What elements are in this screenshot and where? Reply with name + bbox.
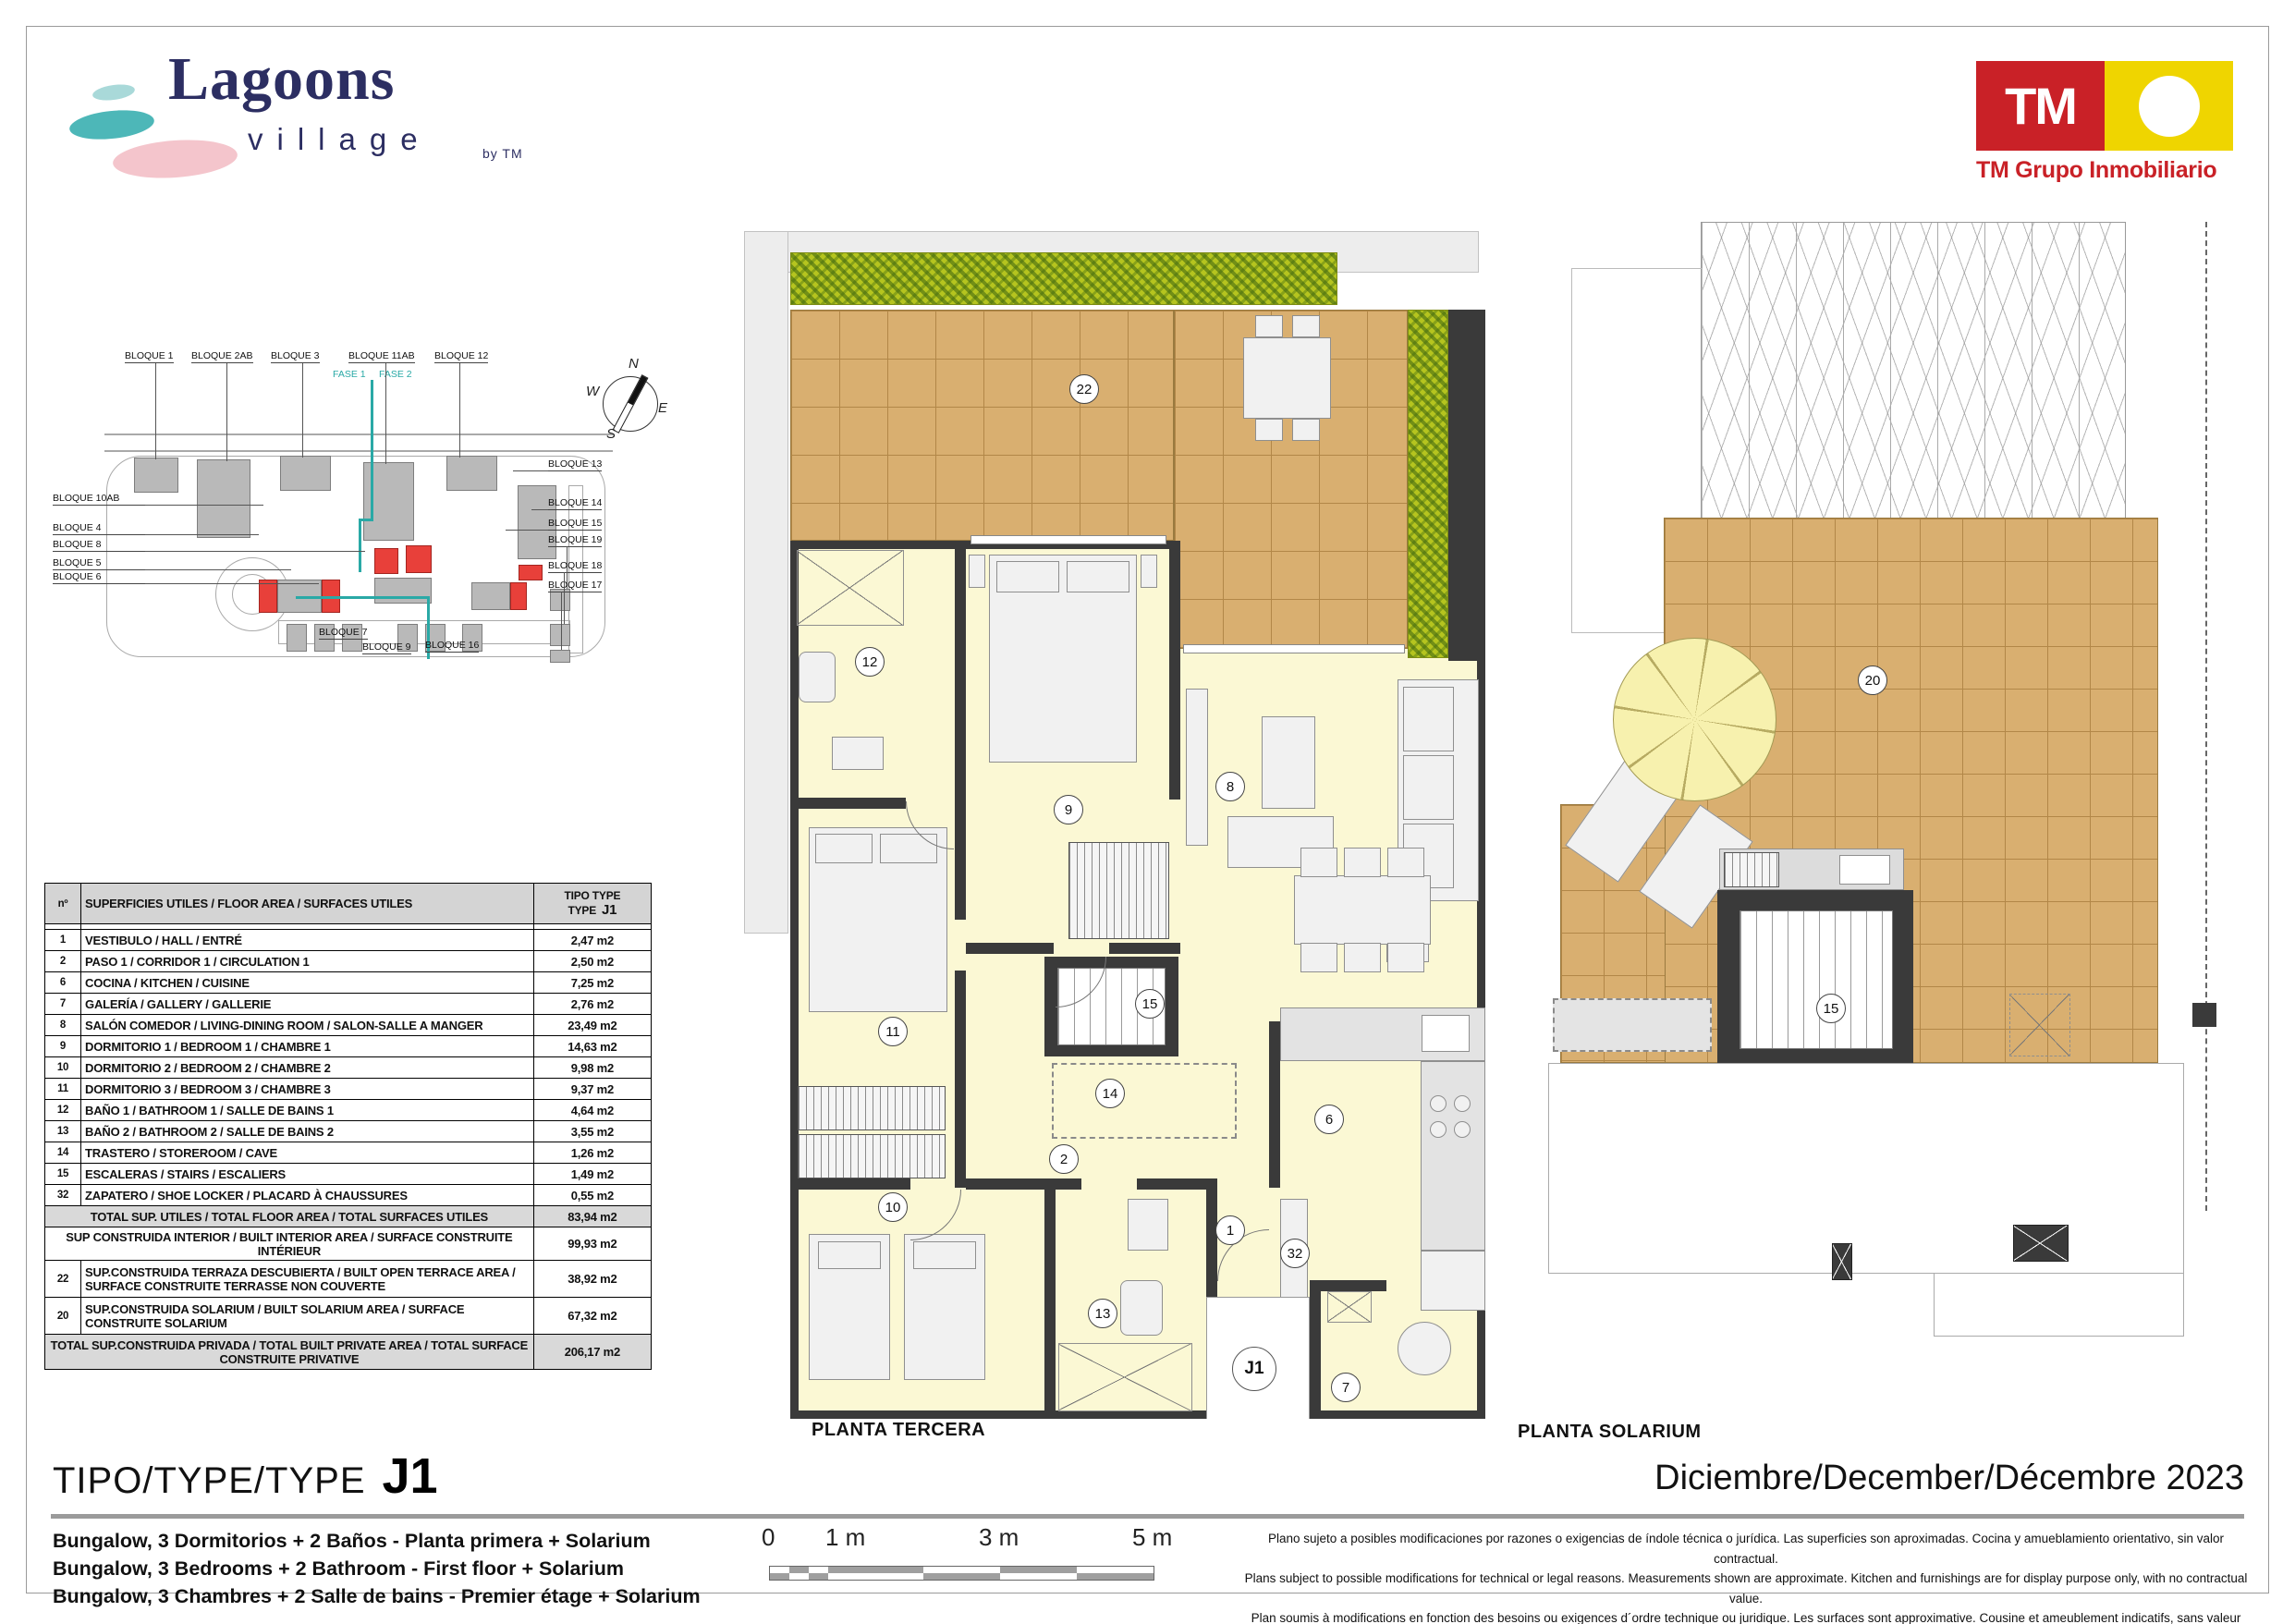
- glass-door: [970, 535, 1166, 544]
- terrace-value: 38,92 m2: [533, 1261, 651, 1298]
- scale-cell: [770, 1573, 789, 1580]
- footer-divider: [51, 1514, 2244, 1519]
- scale-tick-1m: 1 m: [825, 1523, 865, 1552]
- site-label-bloque-15: BLOQUE 15: [548, 518, 602, 531]
- wall: [790, 798, 906, 809]
- table-row: 6COCINA / KITCHEN / CUISINE7,25 m2: [45, 972, 652, 994]
- room-number-storeroom: 14: [1095, 1079, 1125, 1108]
- fridge: [1421, 1251, 1485, 1311]
- legal-disclaimer: Plano sujeto a posibles modificaciones p…: [1239, 1529, 2253, 1624]
- dining-chair: [1387, 943, 1424, 972]
- wall: [955, 541, 966, 809]
- compass: N W E S: [592, 363, 671, 443]
- floorplan-planta-tercera: 22 12 9 8 11 15 14 2 6 10 13 1 32 7 J1: [739, 217, 1493, 1447]
- row-val: 1,26 m2: [533, 1142, 651, 1164]
- sofa-cushion: [1403, 755, 1454, 820]
- wall: [1310, 1280, 1386, 1291]
- building-bloque-17: [550, 650, 570, 663]
- parasol-umbrella: [1613, 638, 1776, 801]
- table-row: 11DORMITORIO 3 / BEDROOM 3 / CHAMBRE 39,…: [45, 1079, 652, 1100]
- site-label-bloque-11ab: BLOQUE 11AB: [348, 350, 415, 363]
- wall: [966, 943, 1054, 954]
- boundary-dashed-line: [2205, 222, 2207, 1211]
- wall: [955, 809, 966, 920]
- tm-logo-red-square: TM: [1976, 61, 2105, 151]
- pillow: [818, 1241, 881, 1269]
- room-number-gallery: 7: [1331, 1373, 1361, 1402]
- row-desc: ESCALERAS / STAIRS / ESCALIERS: [81, 1164, 534, 1185]
- dining-chair: [1344, 848, 1381, 877]
- row-val: 23,49 m2: [533, 1015, 651, 1036]
- site-label-bloque-10ab: BLOQUE 10AB: [53, 493, 145, 506]
- building-bloque-15: [471, 582, 510, 610]
- leader-line: [561, 592, 562, 650]
- room-number-bedroom1: 9: [1054, 795, 1083, 824]
- sheet-date: Diciembre/December/Décembre 2023: [1386, 1459, 2244, 1498]
- row-desc: BAÑO 2 / BATHROOM 2 / SALLE DE BAINS 2: [81, 1121, 534, 1142]
- site-label-bloque-6: BLOQUE 6: [53, 571, 145, 584]
- sofa-cushion: [1403, 687, 1454, 751]
- col-num: nº: [45, 884, 81, 924]
- scale-cell: [789, 1567, 809, 1573]
- washing-machine: [1398, 1322, 1451, 1375]
- room-number-terrace: 22: [1069, 374, 1099, 404]
- toilet: [799, 652, 836, 702]
- disclaimer-fr: Plan soumis à modifications en fonction …: [1239, 1608, 2253, 1624]
- wall: [1169, 541, 1180, 800]
- disclaimer-es: Plano sujeto a posibles modificaciones p…: [1239, 1529, 2253, 1569]
- tm-logo-text: TM: [2005, 76, 2076, 136]
- scale-cell: [1077, 1573, 1154, 1580]
- row-val: 0,55 m2: [533, 1185, 651, 1206]
- description-en: Bungalow, 3 Bedrooms + 2 Bathroom - Firs…: [53, 1555, 701, 1582]
- compass-s: S: [606, 426, 616, 442]
- table-row: 7GALERÍA / GALLERY / GALLERIE2,76 m2: [45, 994, 652, 1015]
- compass-w: W: [586, 384, 599, 399]
- leader-line: [145, 505, 263, 506]
- brand-byline: by TM: [482, 146, 523, 161]
- scale-tick-0: 0: [762, 1523, 775, 1552]
- row-num: 15: [45, 1164, 81, 1185]
- leader-line: [564, 572, 565, 624]
- scale-cell: [1000, 1567, 1077, 1573]
- row-num: 1: [45, 930, 81, 951]
- site-label-bloque-1: BLOQUE 1: [125, 350, 174, 363]
- cooktop-burner: [1454, 1121, 1471, 1138]
- logo-ellipse-teal: [68, 106, 156, 142]
- scale-cell: [828, 1573, 847, 1580]
- scale-bar-row: [770, 1567, 1154, 1573]
- sink: [832, 737, 884, 770]
- total-private-value: 206,17 m2: [533, 1335, 651, 1370]
- sink: [1128, 1199, 1168, 1251]
- scale-bar: [769, 1566, 1154, 1581]
- table-row: 32ZAPATERO / SHOE LOCKER / PLACARD À CHA…: [45, 1185, 652, 1206]
- leader-line: [567, 546, 568, 589]
- site-label-bloque-7: BLOQUE 7: [319, 627, 368, 640]
- disclaimer-en: Plans subject to possible modifications …: [1239, 1569, 2253, 1608]
- leader-line: [385, 363, 386, 464]
- row-desc: TRASTERO / STOREROOM / CAVE: [81, 1142, 534, 1164]
- shower-tray: [797, 550, 904, 626]
- table-terrace-row: 22 SUP.CONSTRUIDA TERRAZA DESCUBIERTA / …: [45, 1261, 652, 1298]
- site-label-bloque-17: BLOQUE 17: [548, 580, 602, 592]
- hedge-top: [790, 252, 1337, 305]
- table-total-utiles-row: TOTAL SUP. UTILES / TOTAL FLOOR AREA / T…: [45, 1206, 652, 1227]
- site-label-bloque-19: BLOQUE 19: [548, 534, 602, 547]
- wardrobe: [1068, 842, 1169, 939]
- grill-grate: [1724, 852, 1779, 887]
- scale-cell: [789, 1573, 809, 1580]
- tm-logo-yellow-square: [2105, 61, 2233, 151]
- outdoor-chair: [1292, 419, 1320, 441]
- tm-logo-circle-icon: [2139, 76, 2200, 137]
- wall: [790, 1178, 910, 1190]
- leader-line: [145, 551, 365, 552]
- kitchen-sink: [1422, 1015, 1470, 1052]
- pillow: [996, 561, 1059, 592]
- leader-line: [145, 569, 291, 570]
- terrace-label: SUP.CONSTRUIDA TERRAZA DESCUBIERTA / BUI…: [81, 1261, 534, 1298]
- table-row: 13BAÑO 2 / BATHROOM 2 / SALLE DE BAINS 2…: [45, 1121, 652, 1142]
- dining-chair: [1387, 848, 1424, 877]
- row-desc: PASO 1 / CORRIDOR 1 / CIRCULATION 1: [81, 951, 534, 972]
- row-desc: DORMITORIO 1 / BEDROOM 1 / CHAMBRE 1: [81, 1036, 534, 1057]
- wall: [955, 971, 966, 1188]
- type-code: J1: [383, 1447, 438, 1505]
- floorplan-planta-solarium: 20 15: [1534, 213, 2218, 1442]
- row-desc: VESTIBULO / HALL / ENTRÉ: [81, 930, 534, 951]
- table-row: 9DORMITORIO 1 / BEDROOM 1 / CHAMBRE 114,…: [45, 1036, 652, 1057]
- site-label-bloque-9: BLOQUE 9: [362, 641, 411, 654]
- room-number-bath2: 13: [1088, 1299, 1117, 1328]
- logo-ellipse-lightteal: [92, 82, 136, 103]
- lower-roof-outline: [1934, 1274, 2184, 1337]
- building-bloque-12: [446, 456, 497, 491]
- table-row: 15ESCALERAS / STAIRS / ESCALIERS1,49 m2: [45, 1164, 652, 1185]
- pillow: [913, 1241, 976, 1269]
- type-label: TIPO/TYPE/TYPE: [53, 1460, 366, 1502]
- col-type-code: J1: [602, 902, 616, 918]
- scale-cell: [923, 1573, 1000, 1580]
- building-highlighted: [406, 545, 432, 573]
- solarium-label: SUP.CONSTRUIDA SOLARIUM / BUILT SOLARIUM…: [81, 1298, 534, 1335]
- fase-boundary-line: [359, 519, 361, 572]
- row-desc: COCINA / KITCHEN / CUISINE: [81, 972, 534, 994]
- description-fr: Bungalow, 3 Chambres + 2 Salle de bains …: [53, 1582, 701, 1610]
- room-number-shoelocker: 32: [1280, 1239, 1310, 1268]
- terrace-tiles: [790, 310, 1174, 541]
- walkway: [744, 231, 788, 934]
- building-bloque-11-lower: [374, 578, 432, 604]
- site-label-bloque-5: BLOQUE 5: [53, 557, 145, 570]
- row-desc: GALERÍA / GALLERY / GALLERIE: [81, 994, 534, 1015]
- row-num: 2: [45, 951, 81, 972]
- room-number-hall: 1: [1215, 1215, 1245, 1245]
- road-line: [104, 450, 613, 452]
- room-number-bedroom2: 10: [878, 1192, 908, 1222]
- storeroom-under-stairs: [1052, 1063, 1237, 1139]
- wall: [1206, 1188, 1217, 1297]
- vent-box: [1832, 1243, 1852, 1280]
- laundry-box: [1327, 1291, 1372, 1323]
- solarium-value: 67,32 m2: [533, 1298, 651, 1335]
- wall: [1448, 310, 1485, 661]
- label-planta-tercera: PLANTA TERCERA: [812, 1420, 985, 1441]
- sheet-title: TIPO/TYPE/TYPE J1: [53, 1447, 438, 1505]
- leader-line: [531, 509, 548, 510]
- glass-door: [1183, 644, 1405, 653]
- lower-roof-outline: [1548, 1063, 2184, 1274]
- table-solarium-row: 20 SUP.CONSTRUIDA SOLARIUM / BUILT SOLAR…: [45, 1298, 652, 1335]
- leader-line: [302, 363, 303, 458]
- building-bloque-2ab: [197, 459, 250, 538]
- row-val: 2,47 m2: [533, 930, 651, 951]
- lagoons-logo: Lagoons village by TM: [65, 37, 545, 185]
- row-num: 9: [45, 1036, 81, 1057]
- leader-line: [459, 363, 460, 458]
- row-num: 7: [45, 994, 81, 1015]
- brand-subtitle: village: [248, 122, 432, 157]
- wall: [1269, 1021, 1280, 1188]
- site-label-bloque-4: BLOQUE 4: [53, 522, 145, 535]
- total-utiles-label: TOTAL SUP. UTILES / TOTAL FLOOR AREA / T…: [45, 1206, 534, 1227]
- pillow: [1067, 561, 1129, 592]
- scale-bar-row: [770, 1573, 1154, 1580]
- row-num: 12: [45, 1100, 81, 1121]
- description-es: Bungalow, 3 Dormitorios + 2 Baños - Plan…: [53, 1527, 701, 1555]
- room-number-bedroom3: 11: [878, 1017, 908, 1046]
- unit-descriptions: Bungalow, 3 Dormitorios + 2 Baños - Plan…: [53, 1527, 701, 1610]
- scale-cell: [828, 1567, 847, 1573]
- site-label-bloque-13: BLOQUE 13: [548, 458, 602, 471]
- row-val: 9,37 m2: [533, 1079, 651, 1100]
- wardrobe: [798, 1086, 946, 1130]
- room-number-stairs: 15: [1135, 989, 1165, 1019]
- col-type: TIPO TYPE TYPEJ1: [533, 884, 651, 924]
- row-num: 11: [45, 1079, 81, 1100]
- site-label-bloque-3: BLOQUE 3: [271, 350, 320, 363]
- wall: [1137, 1178, 1217, 1190]
- room-number-living: 8: [1215, 772, 1245, 801]
- row-desc: ZAPATERO / SHOE LOCKER / PLACARD À CHAUS…: [81, 1185, 534, 1206]
- wall: [1310, 1291, 1321, 1419]
- scale-cell: [847, 1567, 923, 1573]
- site-label-bloque-2ab: BLOQUE 2AB: [191, 350, 253, 363]
- site-label-bloque-16: BLOQUE 16: [425, 640, 479, 653]
- row-desc: DORMITORIO 3 / BEDROOM 3 / CHAMBRE 3: [81, 1079, 534, 1100]
- building-highlighted: [510, 582, 527, 610]
- wardrobe: [798, 1134, 946, 1178]
- row-num: 32: [45, 1185, 81, 1206]
- wall: [966, 1178, 1081, 1190]
- table-built-interior-row: SUP CONSTRUIDA INTERIOR / BUILT INTERIOR…: [45, 1227, 652, 1261]
- row-num: 6: [45, 972, 81, 994]
- row-val: 1,49 m2: [533, 1164, 651, 1185]
- tm-grupo-logo: TM TM Grupo Inmobiliario: [1976, 61, 2263, 190]
- scale-cell: [1077, 1567, 1154, 1573]
- tv-cabinet: [1186, 689, 1208, 846]
- scale-cell: [847, 1573, 923, 1580]
- row-desc: DORMITORIO 2 / BEDROOM 2 / CHAMBRE 2: [81, 1057, 534, 1079]
- leader-line: [226, 363, 227, 461]
- room-number-kitchen: 6: [1314, 1105, 1344, 1134]
- site-label-bloque-14: BLOQUE 14: [548, 497, 602, 510]
- scale-cell: [770, 1567, 789, 1573]
- col-desc: SUPERFICIES UTILES / FLOOR AREA / SURFAC…: [81, 884, 534, 924]
- hedge-right: [1408, 310, 1448, 658]
- compass-e: E: [658, 400, 667, 416]
- plan-sheet: Lagoons village by TM TM TM Grupo Inmobi…: [0, 0, 2295, 1624]
- dining-table: [1294, 875, 1431, 945]
- outdoor-sink: [1839, 855, 1890, 885]
- nightstand: [969, 555, 985, 588]
- site-plan: FASE 1 FASE 2 BLOQUE 1 BLOQUE 2AB BLOQUE…: [51, 347, 689, 665]
- building-bloque-1: [134, 458, 178, 493]
- outdoor-table: [1243, 337, 1331, 419]
- scale-cell: [809, 1573, 828, 1580]
- cooktop-burner: [1430, 1095, 1447, 1112]
- table-row: 10DORMITORIO 2 / BEDROOM 2 / CHAMBRE 29,…: [45, 1057, 652, 1079]
- row-desc: BAÑO 1 / BATHROOM 1 / SALLE DE BAINS 1: [81, 1100, 534, 1121]
- label-planta-solarium: PLANTA SOLARIUM: [1518, 1422, 1702, 1443]
- fase-2-label: FASE 2: [379, 369, 412, 380]
- table-row: 1VESTIBULO / HALL / ENTRÉ2,47 m2: [45, 930, 652, 951]
- total-private-label: TOTAL SUP.CONSTRUIDA PRIVADA / TOTAL BUI…: [45, 1335, 534, 1370]
- brand-title: Lagoons: [168, 44, 395, 115]
- scale-cell: [1000, 1573, 1077, 1580]
- row-val: 9,98 m2: [533, 1057, 651, 1079]
- building-row-house: [287, 624, 307, 652]
- nightstand: [1141, 555, 1157, 588]
- building-bloque-18: [550, 624, 570, 646]
- vent-box: [2013, 1225, 2069, 1262]
- row-num: 10: [45, 1057, 81, 1079]
- row-val: 3,55 m2: [533, 1121, 651, 1142]
- col-type-line1: TIPO TYPE: [564, 889, 620, 902]
- area-table-header: nº SUPERFICIES UTILES / FLOOR AREA / SUR…: [45, 884, 652, 924]
- scale-tick-3m: 3 m: [979, 1523, 1019, 1552]
- building-highlighted: [259, 580, 277, 613]
- total-utiles-value: 83,94 m2: [533, 1206, 651, 1227]
- wall: [1109, 943, 1180, 954]
- outdoor-chair: [1255, 419, 1283, 441]
- fase-boundary-line: [371, 380, 373, 519]
- room-number-bath1: 12: [855, 647, 885, 677]
- row-desc: SALÓN COMEDOR / LIVING-DINING ROOM / SAL…: [81, 1015, 534, 1036]
- road-line: [104, 433, 613, 435]
- dining-chair: [1344, 943, 1381, 972]
- row-val: 4,64 m2: [533, 1100, 651, 1121]
- row-val: 2,50 m2: [533, 951, 651, 972]
- shower-tray: [1058, 1343, 1192, 1411]
- scale-cell: [923, 1567, 1000, 1573]
- stairs: [1740, 910, 1893, 1049]
- leader-line: [155, 363, 156, 459]
- outdoor-chair: [1292, 315, 1320, 337]
- leader-line: [145, 534, 259, 535]
- unit-badge-j1: J1: [1232, 1347, 1276, 1391]
- leader-line: [506, 530, 548, 531]
- skylight-box: [2009, 994, 2070, 1056]
- row-val: 2,76 m2: [533, 994, 651, 1015]
- planter: [1553, 998, 1712, 1052]
- coffee-table: [1262, 716, 1315, 809]
- dining-chair: [1300, 943, 1337, 972]
- row-num: 13: [45, 1121, 81, 1142]
- row-num: 8: [45, 1015, 81, 1036]
- table-row: 8SALÓN COMEDOR / LIVING-DINING ROOM / SA…: [45, 1015, 652, 1036]
- room-number-corridor: 2: [1049, 1144, 1079, 1174]
- site-label-bloque-18: BLOQUE 18: [548, 560, 602, 573]
- scale-tick-5m: 5 m: [1132, 1523, 1172, 1552]
- row-val: 14,63 m2: [533, 1036, 651, 1057]
- leader-line: [145, 583, 319, 584]
- building-bloque-3: [280, 456, 331, 491]
- dining-chair: [1300, 848, 1337, 877]
- table-total-private-row: TOTAL SUP.CONSTRUIDA PRIVADA / TOTAL BUI…: [45, 1335, 652, 1370]
- row-num: 14: [45, 1142, 81, 1164]
- room-number-solarium: 20: [1858, 665, 1887, 695]
- fase-boundary-line: [296, 596, 430, 599]
- table-row: 12BAÑO 1 / BATHROOM 1 / SALLE DE BAINS 1…: [45, 1100, 652, 1121]
- outdoor-chair: [1255, 315, 1283, 337]
- wall: [1044, 1188, 1056, 1419]
- table-row: 2PASO 1 / CORRIDOR 1 / CIRCULATION 12,50…: [45, 951, 652, 972]
- col-type-line2: TYPE: [568, 904, 596, 917]
- cooktop-burner: [1454, 1095, 1471, 1112]
- fase-1-label: FASE 1: [333, 369, 366, 380]
- cooktop-burner: [1430, 1121, 1447, 1138]
- site-label-bloque-8: BLOQUE 8: [53, 539, 145, 552]
- building-highlighted: [374, 548, 398, 574]
- pillow: [815, 834, 873, 863]
- built-interior-label: SUP CONSTRUIDA INTERIOR / BUILT INTERIOR…: [45, 1227, 534, 1261]
- room-number-stairs: 15: [1816, 994, 1846, 1023]
- leader-line: [513, 470, 548, 471]
- chimney: [2192, 1003, 2216, 1027]
- kitchen-counter: [1421, 1061, 1485, 1251]
- building-bloque-14: [519, 565, 543, 580]
- area-table: nº SUPERFICIES UTILES / FLOOR AREA / SUR…: [44, 883, 652, 1370]
- solarium-num: 20: [45, 1298, 81, 1335]
- row-val: 7,25 m2: [533, 972, 651, 994]
- toilet: [1120, 1280, 1163, 1336]
- compass-n: N: [629, 356, 639, 372]
- table-row: 14TRASTERO / STOREROOM / CAVE1,26 m2: [45, 1142, 652, 1164]
- tm-logo-caption: TM Grupo Inmobiliario: [1976, 157, 2216, 184]
- site-label-bloque-12: BLOQUE 12: [434, 350, 488, 363]
- built-interior-value: 99,93 m2: [533, 1227, 651, 1261]
- logo-ellipse-pink: [112, 136, 238, 181]
- terrace-num: 22: [45, 1261, 81, 1298]
- scale-cell: [809, 1567, 828, 1573]
